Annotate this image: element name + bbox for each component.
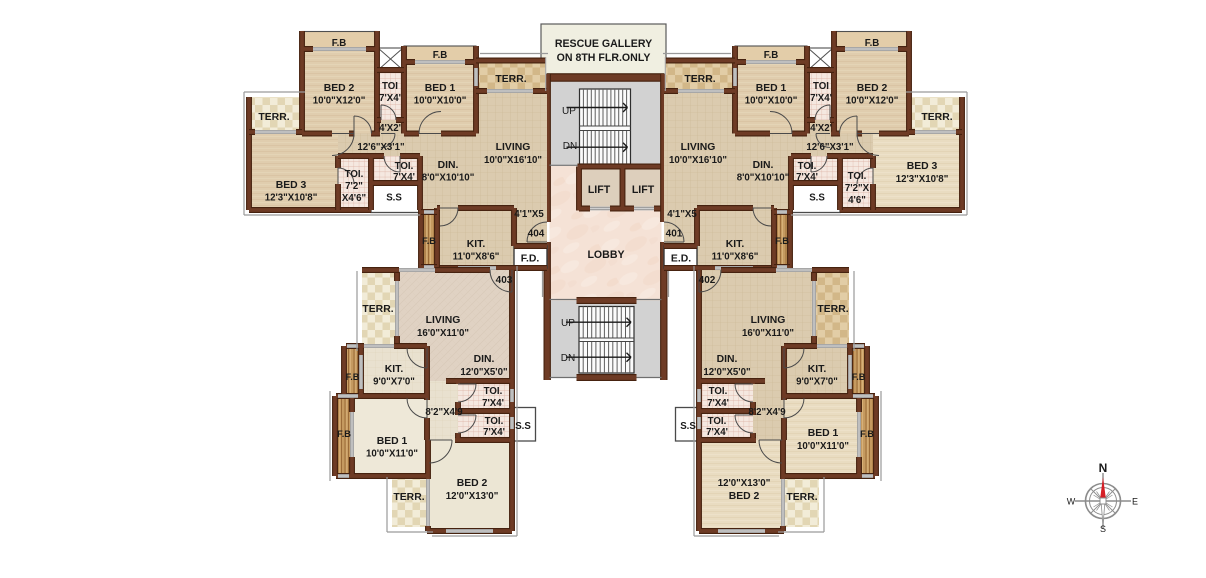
svg-text:S: S — [1100, 524, 1106, 534]
svg-text:TERR.: TERR. — [495, 74, 526, 85]
svg-text:BED 1: BED 1 — [377, 436, 408, 447]
svg-text:ON 8TH FLR.ONLY: ON 8TH FLR.ONLY — [557, 52, 651, 64]
svg-text:TOI.: TOI. — [484, 386, 503, 397]
svg-text:KIT.: KIT. — [808, 364, 827, 375]
svg-text:TERR.: TERR. — [362, 304, 393, 315]
svg-text:BED 2: BED 2 — [729, 491, 760, 502]
svg-text:F.B: F.B — [865, 38, 880, 49]
svg-text:LIFT: LIFT — [588, 184, 611, 196]
svg-text:UP: UP — [561, 318, 575, 329]
svg-text:BED 3: BED 3 — [276, 180, 307, 191]
svg-text:11'0"X8'6": 11'0"X8'6" — [453, 252, 500, 263]
svg-text:10'0"X10'0": 10'0"X10'0" — [745, 96, 798, 107]
svg-text:TOI: TOI — [382, 81, 398, 92]
svg-text:BED 2: BED 2 — [857, 83, 888, 94]
svg-text:TERR.: TERR. — [393, 492, 424, 503]
svg-text:KIT.: KIT. — [726, 239, 745, 250]
svg-text:S.S: S.S — [515, 421, 531, 432]
svg-text:S.S: S.S — [386, 193, 402, 204]
svg-text:403: 403 — [496, 275, 513, 286]
svg-text:16'0"X11'0": 16'0"X11'0" — [417, 328, 469, 339]
svg-text:F.B: F.B — [852, 372, 866, 382]
svg-text:DIN.: DIN. — [753, 160, 774, 171]
svg-text:12'3"X10'8": 12'3"X10'8" — [265, 193, 318, 204]
svg-text:4'1"X5: 4'1"X5 — [514, 209, 544, 220]
svg-text:TERR.: TERR. — [786, 492, 817, 503]
svg-text:8'0"X10'10": 8'0"X10'10" — [422, 173, 475, 184]
svg-text:DIN.: DIN. — [438, 160, 459, 171]
svg-text:S.S: S.S — [809, 193, 825, 204]
svg-text:W: W — [1067, 497, 1076, 507]
svg-text:10'0"X12'0": 10'0"X12'0" — [846, 96, 899, 107]
svg-text:12'3"X10'8": 12'3"X10'8" — [896, 174, 949, 185]
svg-text:TERR.: TERR. — [921, 112, 952, 123]
svg-text:12'0"X13'0": 12'0"X13'0" — [718, 478, 771, 489]
svg-text:TERR.: TERR. — [258, 112, 289, 123]
svg-text:7'X4': 7'X4' — [482, 398, 504, 409]
svg-text:BED 2: BED 2 — [457, 478, 488, 489]
svg-text:16'0"X11'0": 16'0"X11'0" — [742, 328, 794, 339]
svg-text:BED 2: BED 2 — [324, 83, 355, 94]
svg-text:F.B: F.B — [775, 236, 789, 246]
svg-text:7'X4': 7'X4' — [707, 398, 729, 409]
svg-text:TOI.: TOI. — [708, 416, 727, 427]
svg-text:7'X4': 7'X4' — [706, 427, 728, 438]
svg-text:7'2"X: 7'2"X — [845, 183, 870, 194]
svg-text:12'0"X13'0": 12'0"X13'0" — [446, 491, 499, 502]
svg-text:10'0"X16'10": 10'0"X16'10" — [669, 155, 727, 166]
svg-text:F.B: F.B — [332, 38, 347, 49]
svg-text:BED 1: BED 1 — [808, 428, 839, 439]
svg-text:8'2"X4'9: 8'2"X4'9 — [425, 407, 463, 418]
svg-text:BED 3: BED 3 — [907, 161, 938, 172]
svg-text:12'6"X3'1": 12'6"X3'1" — [357, 142, 404, 153]
svg-text:LIVING: LIVING — [681, 142, 716, 153]
svg-text:E.D.: E.D. — [671, 254, 691, 265]
svg-text:F.B: F.B — [422, 236, 436, 246]
svg-text:RESCUE GALLERY: RESCUE GALLERY — [555, 38, 652, 50]
svg-text:F.B: F.B — [433, 50, 448, 61]
svg-text:4'X2': 4'X2' — [810, 123, 832, 134]
svg-text:7'X4': 7'X4' — [393, 172, 415, 183]
svg-text:TERR.: TERR. — [817, 304, 848, 315]
svg-text:F.B: F.B — [860, 429, 874, 439]
svg-text:LIVING: LIVING — [751, 315, 786, 326]
svg-text:KIT.: KIT. — [467, 239, 486, 250]
svg-text:TOI.: TOI. — [395, 161, 414, 172]
svg-text:DIN.: DIN. — [474, 354, 495, 365]
svg-text:LIVING: LIVING — [426, 315, 461, 326]
svg-text:7'X4': 7'X4' — [483, 427, 505, 438]
svg-text:9'0"X7'0": 9'0"X7'0" — [373, 377, 415, 388]
svg-text:TOI.: TOI. — [709, 386, 728, 397]
svg-text:8'0"X10'10": 8'0"X10'10" — [737, 173, 790, 184]
svg-text:402: 402 — [699, 275, 716, 286]
svg-text:404: 404 — [528, 229, 545, 240]
svg-text:DIN.: DIN. — [717, 354, 738, 365]
svg-text:8'2"X4'9: 8'2"X4'9 — [748, 407, 786, 418]
svg-text:X4'6": X4'6" — [342, 193, 366, 204]
svg-text:LOBBY: LOBBY — [587, 249, 624, 261]
svg-text:TOI.: TOI. — [798, 161, 817, 172]
svg-text:S.S: S.S — [680, 421, 696, 432]
svg-text:TERR.: TERR. — [684, 74, 715, 85]
svg-text:7'X4': 7'X4' — [796, 172, 818, 183]
svg-text:N: N — [1099, 461, 1108, 475]
svg-text:4'6": 4'6" — [848, 195, 866, 206]
svg-text:TOI.: TOI. — [848, 171, 867, 182]
svg-text:TOI.: TOI. — [345, 169, 364, 180]
svg-text:12'0"X5'0": 12'0"X5'0" — [460, 367, 507, 378]
svg-text:10'0"X11'0": 10'0"X11'0" — [797, 441, 849, 452]
svg-text:UP: UP — [562, 106, 576, 117]
svg-text:401: 401 — [666, 229, 683, 240]
svg-text:E: E — [1132, 497, 1138, 507]
svg-text:KIT.: KIT. — [385, 364, 404, 375]
svg-text:12'6"X3'1": 12'6"X3'1" — [806, 142, 853, 153]
svg-text:DN: DN — [561, 353, 575, 364]
svg-text:9'0"X7'0": 9'0"X7'0" — [796, 377, 838, 388]
svg-text:BED 1: BED 1 — [756, 83, 787, 94]
svg-text:DN: DN — [563, 141, 577, 152]
svg-text:10'0"X12'0": 10'0"X12'0" — [313, 96, 366, 107]
svg-text:4'1"X5: 4'1"X5 — [667, 209, 697, 220]
svg-text:TOI.: TOI. — [485, 416, 504, 427]
svg-text:F.D.: F.D. — [521, 254, 540, 265]
svg-text:TOI: TOI — [813, 81, 829, 92]
svg-text:BED 1: BED 1 — [425, 83, 456, 94]
svg-text:7'X4': 7'X4' — [379, 93, 401, 104]
svg-text:7'X4': 7'X4' — [810, 93, 832, 104]
svg-text:4'X2': 4'X2' — [379, 123, 401, 134]
svg-text:7'2": 7'2" — [345, 181, 363, 192]
svg-text:LIVING: LIVING — [496, 142, 531, 153]
svg-text:10'0"X11'0": 10'0"X11'0" — [366, 449, 418, 460]
svg-text:10'0"X10'0": 10'0"X10'0" — [414, 96, 467, 107]
svg-text:11'0"X8'6": 11'0"X8'6" — [712, 252, 759, 263]
svg-text:12'0"X5'0": 12'0"X5'0" — [703, 367, 750, 378]
svg-text:F.B: F.B — [337, 429, 351, 439]
svg-text:F.B: F.B — [764, 50, 779, 61]
svg-text:F.B: F.B — [346, 372, 360, 382]
svg-text:LIFT: LIFT — [632, 184, 655, 196]
svg-text:10'0"X16'10": 10'0"X16'10" — [484, 155, 542, 166]
